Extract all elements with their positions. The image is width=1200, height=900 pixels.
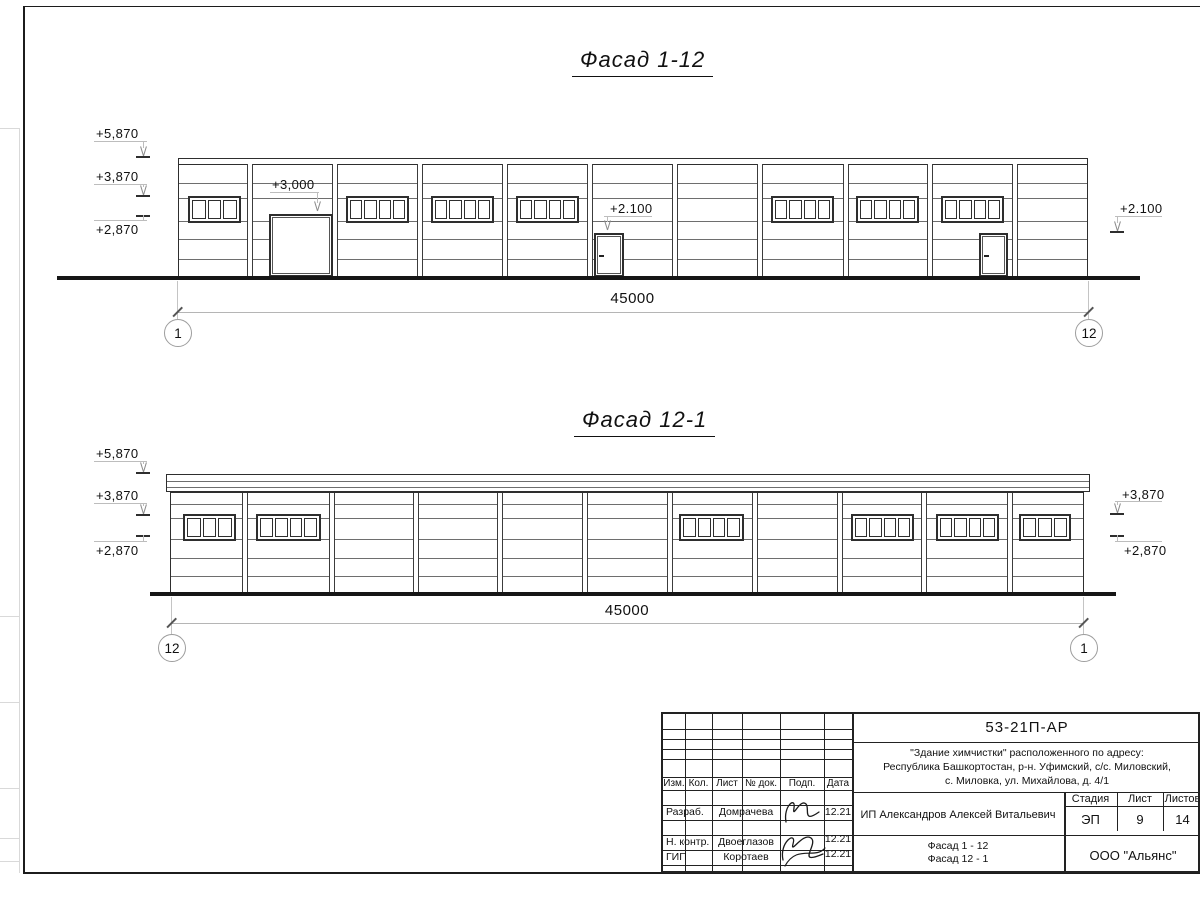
margin-strip-line	[19, 128, 20, 873]
window-pane	[889, 200, 901, 219]
window-pane	[1054, 518, 1067, 537]
entry-door	[594, 233, 624, 277]
column-line	[1007, 493, 1013, 592]
arrowhead-stroke	[140, 185, 144, 195]
mark-arrow-down	[139, 185, 148, 195]
stamp-line	[663, 749, 852, 750]
elevation-mark-label: +3,000	[272, 177, 315, 192]
window-pane	[208, 200, 222, 219]
stamp-line	[663, 790, 852, 791]
arrowhead-stroke	[1114, 221, 1118, 231]
mark-arrow-down	[313, 201, 322, 211]
window-pane	[449, 200, 461, 219]
ground-line	[57, 276, 1140, 280]
column-line	[247, 164, 253, 276]
window-pane	[974, 200, 986, 219]
stamp-role-nkontr: Н. контр.	[663, 835, 712, 850]
window-pane	[775, 200, 787, 219]
mark-line	[604, 216, 652, 217]
window-pane	[350, 200, 362, 219]
window-pane	[520, 200, 532, 219]
window-pane	[884, 518, 896, 537]
extension-line	[177, 281, 178, 319]
stamp-header-data: Дата	[824, 777, 852, 790]
column-line	[502, 164, 508, 276]
extension-line	[1088, 281, 1089, 319]
project-address-line: Республика Башкортостан, р-н. Уфимский, …	[883, 760, 1171, 774]
window-pane	[187, 518, 201, 537]
title-block: Изм. Кол. Лист № док. Подп. Дата Разраб.…	[661, 712, 1200, 873]
company-name: ООО "Альянс"	[1064, 844, 1200, 869]
window-pane	[804, 200, 816, 219]
parapet-line	[167, 487, 1089, 488]
column-line	[757, 164, 763, 276]
stamp-header-list: Лист	[712, 777, 742, 790]
stamp-header-ndok: № док.	[742, 777, 780, 790]
window-pane	[304, 518, 317, 537]
window-pane	[379, 200, 391, 219]
column-line	[242, 493, 248, 592]
window-pane	[945, 200, 957, 219]
sheets-label: Листов	[1163, 792, 1200, 806]
facade-12-1-axis-left-bubble: 12	[158, 634, 186, 662]
arrowhead-stroke	[604, 220, 608, 230]
stamp-line	[852, 742, 1198, 743]
elevation-mark-label: +2,870	[1124, 543, 1167, 558]
door-handle	[984, 255, 989, 257]
document-code: 53-21П-АР	[852, 716, 1200, 740]
window	[346, 196, 409, 223]
siding-line	[171, 558, 1083, 559]
window-pane	[192, 200, 206, 219]
window	[936, 514, 999, 541]
column-line	[927, 164, 933, 276]
column-line	[843, 164, 849, 276]
window-pane	[218, 518, 232, 537]
siding-line	[179, 183, 1087, 184]
window-pane	[869, 518, 881, 537]
margin-strip-tick	[0, 838, 19, 839]
window-pane	[959, 200, 971, 219]
dimension-line	[171, 623, 1083, 624]
sheet-border-left	[23, 6, 25, 873]
facade-12-1-parapet	[166, 474, 1090, 492]
ground-line	[150, 592, 1116, 596]
gate-leaf	[272, 217, 330, 274]
window	[771, 196, 834, 223]
stamp-role-razrab: Разраб.	[663, 805, 712, 820]
door-handle	[599, 255, 604, 257]
extension-line	[1083, 597, 1084, 634]
elevation-mark-label: +3,870	[1122, 487, 1165, 502]
window-pane	[260, 518, 273, 537]
level-tick	[1110, 513, 1124, 515]
sheet-label: Лист	[1117, 792, 1163, 806]
mark-leader	[143, 535, 144, 541]
column-line	[497, 493, 503, 592]
window-pane	[1023, 518, 1036, 537]
gate-door	[269, 214, 333, 277]
mark-line	[94, 220, 147, 221]
column-line	[672, 164, 678, 276]
facade-1-12-axis-right-bubble: 12	[1075, 319, 1103, 347]
window-pane	[563, 200, 575, 219]
elevation-mark-label: +2,870	[96, 543, 139, 558]
elevation-mark-label: +2.100	[1120, 201, 1163, 216]
column-line	[667, 493, 673, 592]
client-name: ИП Александров Алексей Витальевич	[852, 802, 1064, 829]
mark-line	[1115, 501, 1162, 502]
mark-arrow-down	[1113, 503, 1122, 513]
sheets-total: 14	[1163, 806, 1200, 835]
stamp-header-kol: Кол.	[685, 777, 712, 790]
window-pane	[818, 200, 830, 219]
window-pane	[969, 518, 981, 537]
window-pane	[1038, 518, 1051, 537]
window-pane	[789, 200, 801, 219]
margin-strip-tick	[0, 702, 19, 703]
column-line	[413, 493, 419, 592]
window-pane	[464, 200, 476, 219]
window-pane	[290, 518, 303, 537]
project-address: "Здание химчистки" расположенного по адр…	[855, 744, 1199, 790]
window	[941, 196, 1004, 223]
window-pane	[713, 518, 726, 537]
window	[188, 196, 241, 223]
column-line	[329, 493, 335, 592]
window	[256, 514, 321, 541]
mark-arrow-down	[139, 462, 148, 472]
window	[431, 196, 494, 223]
arrowhead-stroke	[140, 504, 144, 514]
drawing-name-2: Фасад 12 - 1	[852, 853, 1064, 866]
window	[856, 196, 919, 223]
entry-door	[979, 233, 1008, 277]
mark-arrow-down	[139, 146, 148, 156]
facade-12-1-title: Фасад 12-1	[574, 407, 715, 437]
window	[183, 514, 236, 541]
level-tick	[136, 195, 150, 197]
stamp-line	[663, 729, 852, 730]
mark-line	[94, 541, 147, 542]
mark-arrow-down	[603, 220, 612, 230]
signature-developer	[781, 794, 823, 830]
extension-line	[171, 597, 172, 634]
column-line	[1012, 164, 1018, 276]
siding-line	[171, 576, 1083, 577]
window-pane	[549, 200, 561, 219]
window-pane	[988, 200, 1000, 219]
column-line	[582, 493, 588, 592]
margin-strip-tick	[0, 128, 19, 129]
sheet-number: 9	[1117, 806, 1163, 835]
level-tick	[1110, 231, 1124, 233]
level-tick	[136, 472, 150, 474]
column-line	[921, 493, 927, 592]
window-pane	[983, 518, 995, 537]
window-pane	[534, 200, 546, 219]
siding-line	[171, 504, 1083, 505]
parapet-line	[167, 481, 1089, 482]
stamp-date-1: 12.21	[824, 805, 852, 820]
facade-12-1-axis-right-bubble: 1	[1070, 634, 1098, 662]
dimension-line	[177, 312, 1088, 313]
stamp-line	[663, 759, 852, 760]
column-line	[417, 164, 423, 276]
stage-value: ЭП	[1064, 806, 1117, 835]
stamp-name-dvoeglazov: Двоеглазов	[712, 835, 780, 850]
window-pane	[478, 200, 490, 219]
mark-line	[1115, 541, 1162, 542]
arrowhead-stroke	[140, 146, 144, 156]
facade-1-12-wall	[178, 158, 1088, 277]
margin-strip-tick	[0, 616, 19, 617]
mark-line	[94, 141, 147, 142]
window-pane	[940, 518, 952, 537]
column-line	[587, 164, 593, 276]
mark-leader	[1117, 535, 1118, 541]
stage-label: Стадия	[1064, 792, 1117, 806]
window-pane	[855, 518, 867, 537]
elevation-mark-label: +2,870	[96, 222, 139, 237]
elevation-mark-label: +2.100	[610, 201, 653, 216]
margin-strip-tick	[0, 788, 19, 789]
facade-1-12-title: Фасад 1-12	[572, 47, 713, 77]
facade-1-12-axis-left-bubble: 1	[164, 319, 192, 347]
dimension-label: 45000	[587, 602, 667, 619]
window-pane	[435, 200, 447, 219]
level-tick	[136, 156, 150, 158]
mark-leader	[143, 215, 144, 220]
dimension-label: 45000	[593, 290, 673, 307]
sheet-border-top	[23, 6, 1200, 7]
signature-checker	[777, 826, 829, 872]
window-pane	[683, 518, 696, 537]
margin-strip-tick	[0, 861, 19, 862]
drawing-sheet: Фасад 1-1245000112+5,870+3,870+2,870+3,0…	[0, 0, 1200, 900]
stamp-line	[663, 820, 852, 821]
stamp-role-gip: ГИП	[663, 850, 712, 865]
window-pane	[393, 200, 405, 219]
window-pane	[898, 518, 910, 537]
stamp-header-podp: Подп.	[780, 777, 824, 790]
mark-arrow-down	[1113, 221, 1122, 231]
window	[1019, 514, 1071, 541]
project-address-line: с. Миловка, ул. Михайлова, д. 4/1	[945, 774, 1109, 788]
elevation-mark-label: +3,870	[96, 169, 139, 184]
window-pane	[727, 518, 740, 537]
window-pane	[364, 200, 376, 219]
mark-line	[270, 192, 319, 193]
window-pane	[903, 200, 915, 219]
window-pane	[223, 200, 237, 219]
stamp-name-domracheva: Домрачева	[712, 805, 780, 820]
window	[851, 514, 914, 541]
window	[679, 514, 744, 541]
elevation-mark-label: +5,870	[96, 126, 139, 141]
mark-line	[1115, 216, 1162, 217]
window-pane	[954, 518, 966, 537]
facade-1-12-roof-band	[179, 159, 1087, 165]
mark-arrow-down	[139, 504, 148, 514]
drawing-name-1: Фасад 1 - 12	[852, 840, 1064, 853]
level-tick	[136, 514, 150, 516]
window	[516, 196, 579, 223]
stamp-line	[852, 835, 1198, 836]
window-pane	[275, 518, 288, 537]
elevation-mark-label: +3,870	[96, 488, 139, 503]
arrowhead-stroke	[314, 201, 318, 211]
window-pane	[860, 200, 872, 219]
window-pane	[698, 518, 711, 537]
arrowhead-stroke	[140, 462, 144, 472]
facade-12-1-wall	[170, 492, 1084, 593]
elevation-mark-label: +5,870	[96, 446, 139, 461]
arrowhead-stroke	[1114, 503, 1118, 513]
window-pane	[874, 200, 886, 219]
column-line	[752, 493, 758, 592]
column-line	[837, 493, 843, 592]
window-pane	[203, 518, 217, 537]
project-address-line: "Здание химчистки" расположенного по адр…	[910, 746, 1144, 760]
stamp-line	[663, 739, 852, 740]
stamp-header-izm: Изм.	[663, 777, 685, 790]
stamp-name-korotaev: Коротаев	[712, 850, 780, 865]
